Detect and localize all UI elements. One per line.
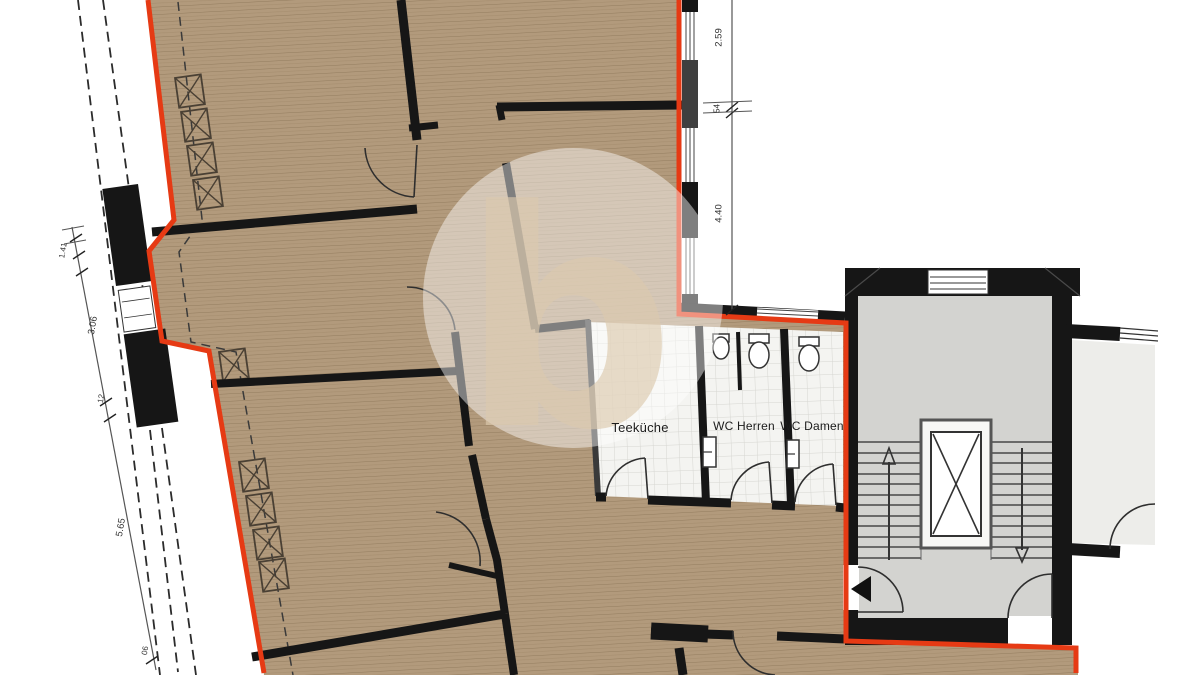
dim-right-0: 2.59 [714, 21, 725, 55]
room-label-teekueche: Teeküche [598, 420, 682, 435]
elevator [921, 420, 991, 548]
dim-right-1: 54 [713, 92, 722, 126]
toilet-men [749, 334, 769, 368]
toilet-women [799, 337, 819, 371]
room-label-wc-herren: WC Herren [706, 419, 782, 433]
floor-plan: b Teeküche WC Herren WC Damen 1.41 3.06 … [0, 0, 1200, 675]
floor-plan-drawing: b [0, 0, 1200, 675]
stairwell-window [928, 270, 988, 294]
dim-right-2: 4.40 [714, 197, 725, 231]
stairwell [843, 268, 1080, 647]
room-label-wc-damen: WC Damen [778, 419, 846, 433]
sink-men [703, 437, 716, 467]
watermark-letter: b [461, 147, 676, 496]
facade-window [118, 286, 156, 332]
sink-women [787, 440, 799, 468]
side-room [1066, 328, 1158, 552]
